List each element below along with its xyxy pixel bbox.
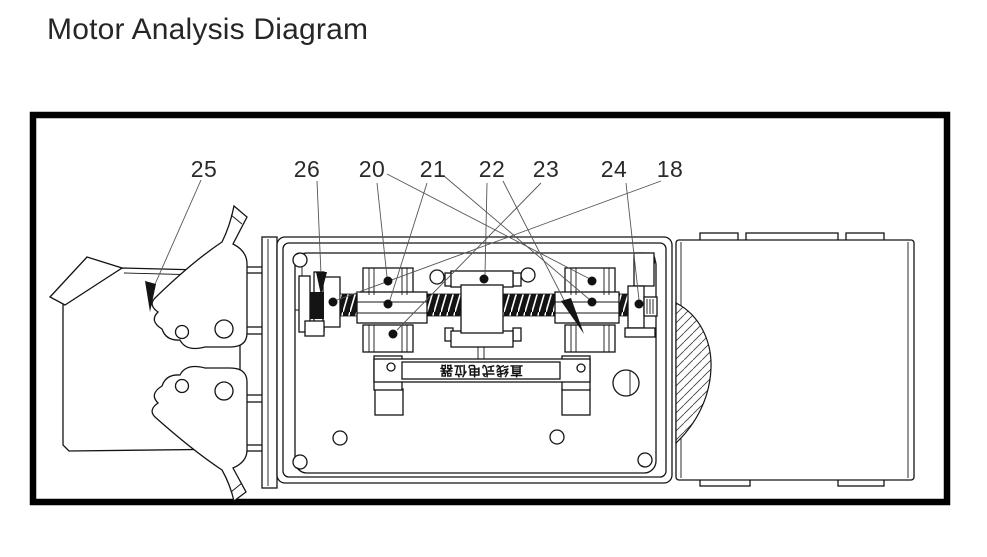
right-guide-block [555,268,619,352]
coupler-block [310,292,324,319]
fixture-hole-upper [176,326,189,339]
motor-diagram-figure: 直线式电位器 25 26 20 21 22 23 24 [0,0,987,557]
callout-21: 21 [420,156,447,182]
lower-arm-hole [215,382,233,400]
upper-arm-hole [215,320,233,338]
callout-20: 20 [359,156,386,182]
bar-foot-left [375,389,403,415]
callout-18: 18 [657,156,684,182]
callout-26: 26 [294,156,321,182]
adapter-plate [262,237,277,488]
component-label: 直线式电位器 [439,363,523,378]
motor-housing [676,240,914,480]
callout-24: 24 [601,156,628,182]
fixture-hole-lower [176,380,189,393]
callout-23: 23 [533,156,560,182]
adjuster-screw-head [613,370,639,396]
callout-25: 25 [191,156,218,182]
end-nut [644,297,657,316]
callout-22: 22 [479,156,506,182]
bar-foot-right [562,389,590,415]
motor-body [676,233,914,486]
